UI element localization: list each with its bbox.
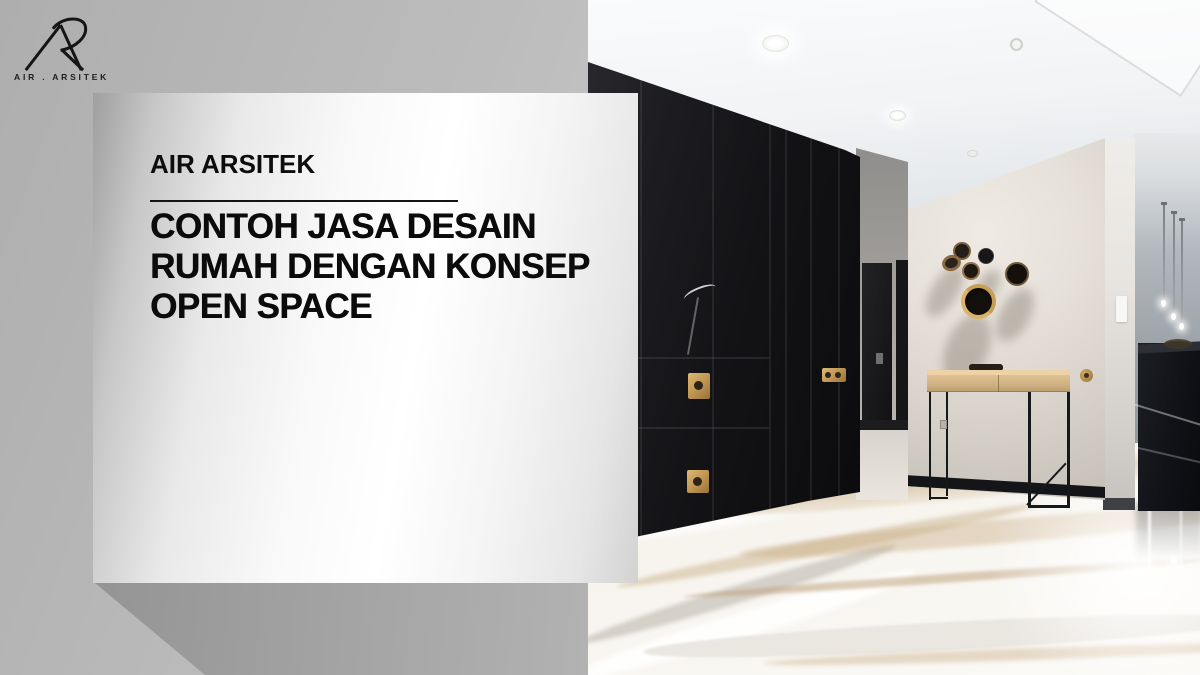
wall-circle-decor	[978, 248, 994, 264]
wardrobe-handle-cable	[687, 297, 699, 354]
recessed-light	[967, 150, 978, 157]
monogram-a-left	[26, 25, 61, 70]
wall-column	[1103, 138, 1135, 510]
console-table	[927, 364, 1073, 510]
table-leg	[1067, 392, 1070, 508]
gold-door-knob	[688, 373, 710, 399]
knob-center	[835, 372, 841, 378]
card-drop-shadow	[0, 583, 588, 675]
marble-island-vein	[1135, 446, 1200, 465]
knob-center	[693, 477, 702, 486]
small-wall-socket	[940, 420, 947, 429]
corridor-door	[896, 260, 908, 425]
wardrobe-panel-seam	[640, 0, 642, 560]
corridor-floor	[856, 430, 908, 500]
floor-glint	[1171, 558, 1177, 564]
interior-photo	[588, 0, 1200, 675]
island-bowl	[1164, 339, 1192, 349]
table-leg	[1028, 392, 1031, 506]
column-baseboard	[1103, 498, 1135, 510]
smoke-detector	[1010, 38, 1023, 51]
banner-canvas: AIR ARSITEK CONTOH JASA DESAIN RUMAH DEN…	[0, 0, 1200, 675]
pendant-cap	[1179, 218, 1185, 221]
wall-circle-decor-large-gold	[961, 284, 996, 319]
marble-island-vein	[1133, 403, 1200, 428]
knob-center	[825, 372, 831, 378]
pendant-light	[1181, 221, 1183, 324]
table-leg	[929, 392, 931, 500]
kitchen-island	[1138, 343, 1200, 511]
floor-light-streak	[1180, 503, 1182, 565]
ar-monogram-logo	[11, 10, 96, 72]
table-rail	[929, 497, 948, 499]
brand-logo: AIR . ARSITEK	[6, 6, 156, 96]
socket-center	[1084, 373, 1089, 378]
recessed-light	[889, 110, 906, 121]
divider-line	[150, 200, 458, 202]
wall-circle-decor	[1005, 262, 1029, 286]
pendant-cap	[1161, 202, 1167, 205]
pendant-bulb	[1178, 322, 1185, 331]
title-line-1: CONTOH JASA DESAIN	[150, 207, 610, 247]
ceiling-access-panel	[1034, 0, 1200, 97]
pendant-cap	[1171, 211, 1177, 214]
title-card: AIR ARSITEK CONTOH JASA DESAIN RUMAH DEN…	[93, 93, 638, 583]
console-drawers	[927, 375, 1070, 392]
title-line-3: OPEN SPACE	[150, 287, 610, 327]
corridor	[856, 148, 908, 500]
floor-glint	[1154, 590, 1159, 595]
gold-wall-socket	[1080, 369, 1093, 382]
pendant-light	[1173, 214, 1175, 314]
corridor-door	[862, 263, 892, 421]
title-line-2: RUMAH DENGAN KONSEP	[150, 247, 610, 287]
drawer-seam	[998, 375, 999, 392]
gold-double-knob	[822, 368, 846, 382]
pendant-bulb	[1170, 312, 1177, 321]
corridor-threshold	[856, 420, 908, 430]
knob-center	[694, 381, 703, 390]
corridor-switch	[876, 353, 883, 364]
table-rail	[1028, 505, 1069, 508]
pendant-light	[1163, 205, 1165, 301]
brand-name-text: AIR . ARSITEK	[14, 72, 109, 82]
page-title: CONTOH JASA DESAIN RUMAH DENGAN KONSEP O…	[150, 207, 610, 327]
gold-door-knob	[687, 470, 709, 493]
light-switch-panel	[1116, 296, 1127, 322]
recessed-light	[762, 35, 789, 52]
brand-label: AIR ARSITEK	[150, 149, 315, 180]
wall-circle-decor	[962, 262, 980, 280]
table-leg	[946, 392, 948, 496]
table-strut	[1026, 463, 1066, 506]
